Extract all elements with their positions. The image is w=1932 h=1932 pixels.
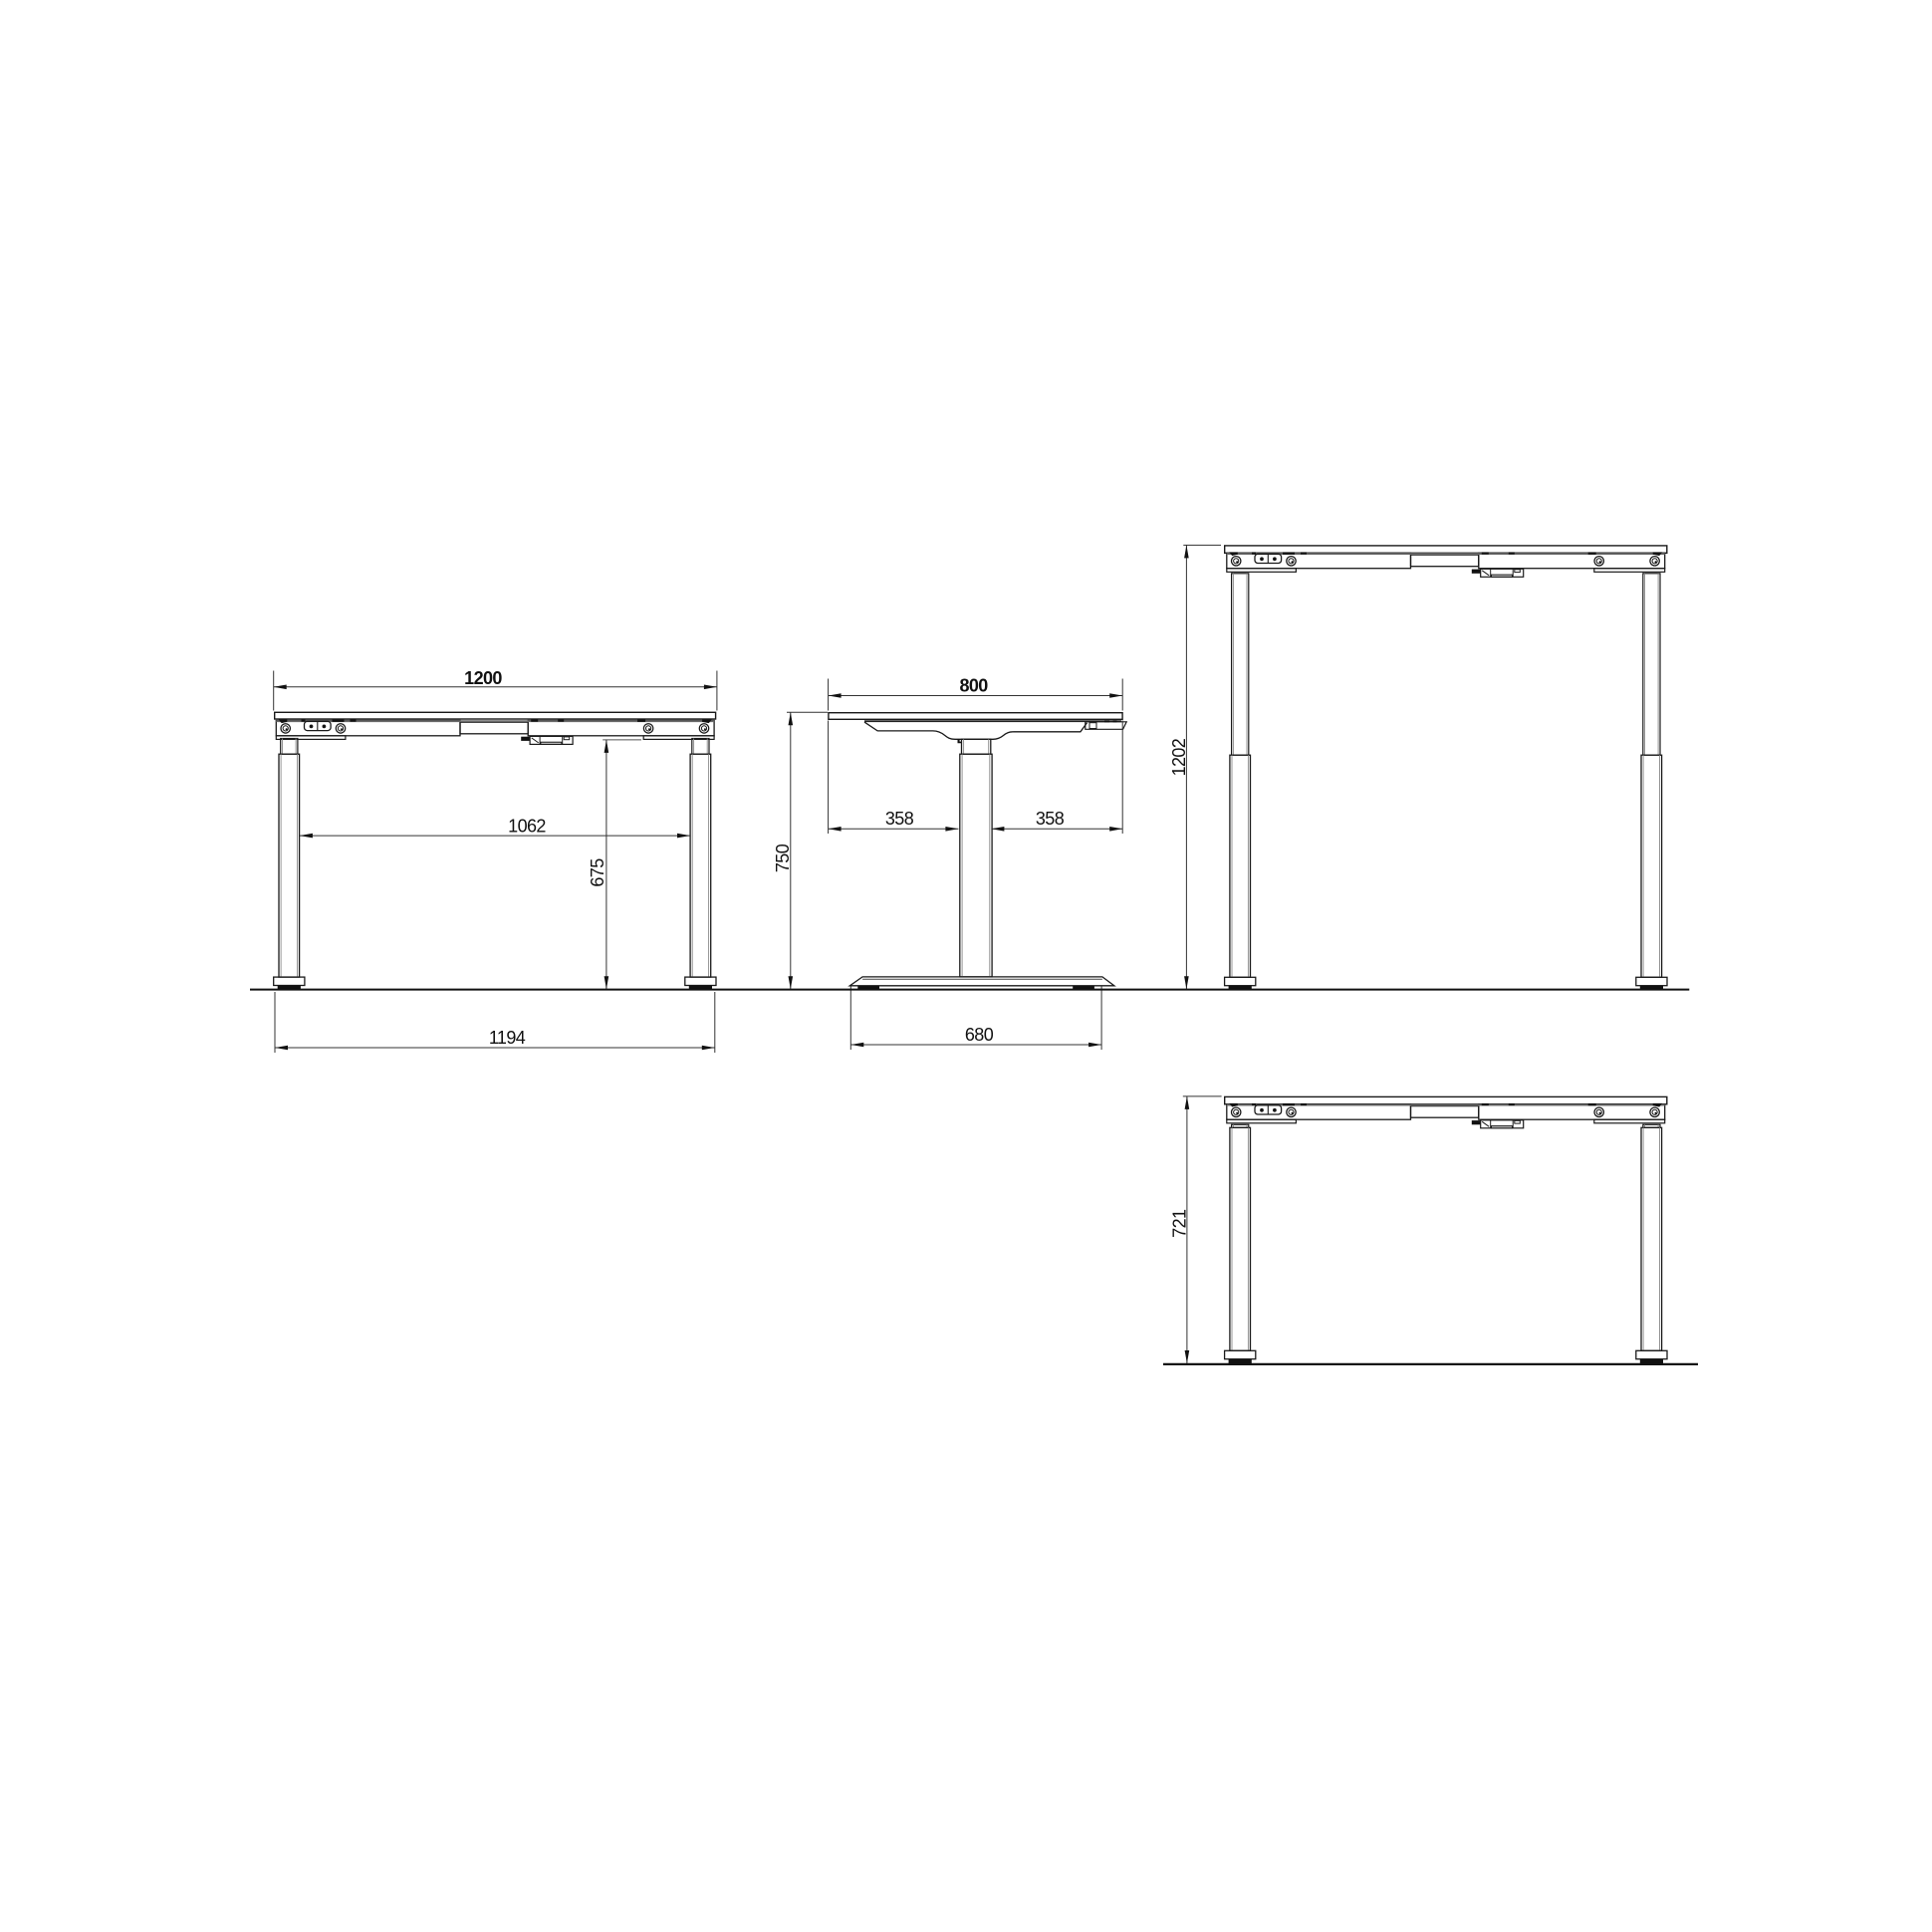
svg-text:675: 675 <box>588 858 607 887</box>
svg-text:358: 358 <box>885 809 914 829</box>
svg-text:721: 721 <box>1169 1209 1189 1238</box>
svg-text:1194: 1194 <box>489 1028 526 1048</box>
svg-text:1200: 1200 <box>464 668 502 688</box>
svg-text:750: 750 <box>773 844 793 872</box>
svg-text:800: 800 <box>959 675 988 695</box>
svg-text:1062: 1062 <box>508 817 546 837</box>
svg-text:358: 358 <box>1036 809 1065 829</box>
svg-text:1202: 1202 <box>1169 738 1189 776</box>
svg-text:680: 680 <box>965 1025 994 1045</box>
